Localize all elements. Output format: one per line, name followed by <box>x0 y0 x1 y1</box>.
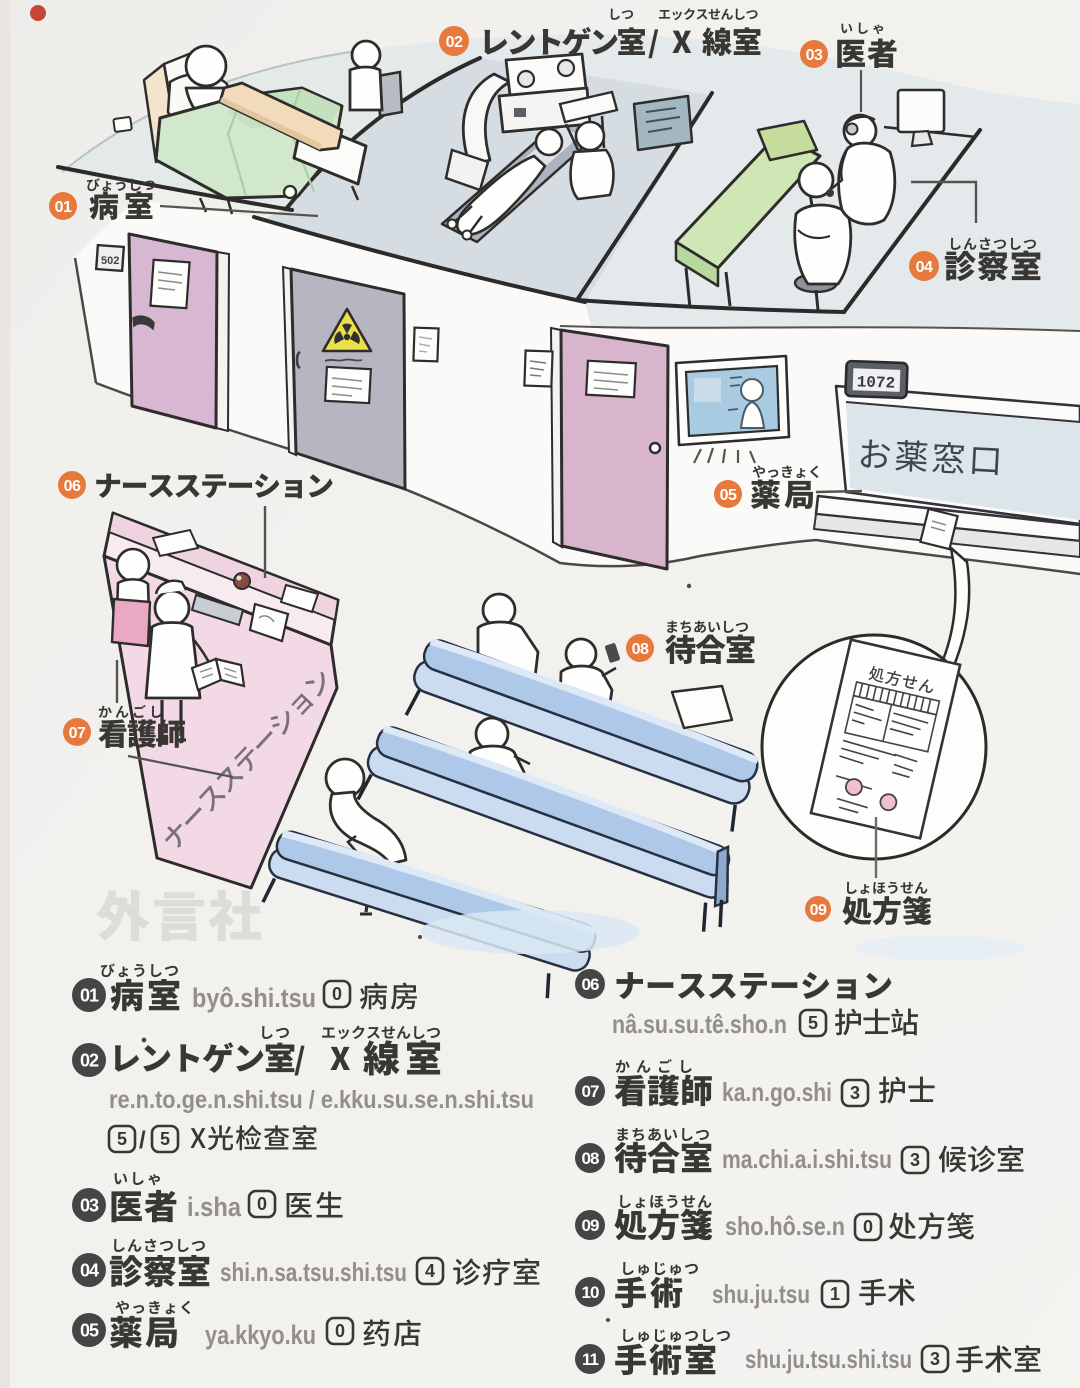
svg-text:re.n.to.ge.n.shi.tsu / e.kku.s: re.n.to.ge.n.shi.tsu / e.kku.su.se.n.shi… <box>109 1086 534 1114</box>
svg-text:0: 0 <box>863 1217 873 1237</box>
svg-text:01: 01 <box>55 199 72 216</box>
svg-text:5: 5 <box>117 1129 127 1149</box>
svg-text:4: 4 <box>425 1261 435 1281</box>
svg-text:5: 5 <box>160 1129 170 1149</box>
svg-text:0: 0 <box>257 1194 267 1214</box>
svg-text:0: 0 <box>335 1321 345 1341</box>
svg-text:09: 09 <box>582 1216 599 1235</box>
svg-text:3: 3 <box>850 1083 860 1103</box>
svg-text:03: 03 <box>80 1195 99 1215</box>
svg-text:06: 06 <box>582 975 599 994</box>
svg-text:ma.chi.a.i.shi.tsu: ma.chi.a.i.shi.tsu <box>722 1144 892 1174</box>
svg-text:shu.ju.tsu: shu.ju.tsu <box>712 1279 810 1309</box>
svg-text:02: 02 <box>446 34 463 51</box>
svg-text:02: 02 <box>80 1050 99 1070</box>
svg-text:1: 1 <box>830 1284 840 1304</box>
svg-text:04: 04 <box>80 1260 99 1280</box>
svg-text:502: 502 <box>101 255 119 267</box>
svg-text:3: 3 <box>910 1150 920 1170</box>
svg-text:shi.n.sa.tsu.shi.tsu: shi.n.sa.tsu.shi.tsu <box>220 1257 407 1287</box>
svg-text:05: 05 <box>80 1320 99 1340</box>
svg-text:01: 01 <box>80 985 99 1005</box>
svg-text:5: 5 <box>808 1013 818 1033</box>
svg-text:10: 10 <box>582 1283 599 1302</box>
svg-text:04: 04 <box>916 259 933 276</box>
svg-text:07: 07 <box>69 725 86 742</box>
svg-text:sho.hô.se.n: sho.hô.se.n <box>725 1211 845 1241</box>
svg-text:ka.n.go.shi: ka.n.go.shi <box>722 1077 832 1107</box>
svg-text:ya.kkyo.ku: ya.kkyo.ku <box>205 1320 316 1350</box>
svg-text:08: 08 <box>582 1149 599 1168</box>
svg-text:06: 06 <box>64 478 81 495</box>
svg-text:3: 3 <box>930 1349 940 1369</box>
svg-text:07: 07 <box>582 1082 599 1101</box>
svg-text:0: 0 <box>332 984 342 1004</box>
svg-text:i.sha: i.sha <box>187 1192 242 1222</box>
svg-text:03: 03 <box>806 47 823 64</box>
svg-text:/: / <box>139 1127 146 1154</box>
svg-text:05: 05 <box>720 487 737 504</box>
svg-text:byô.shi.tsu: byô.shi.tsu <box>192 983 316 1013</box>
svg-text:09: 09 <box>810 902 827 919</box>
svg-text:shu.ju.tsu.shi.tsu: shu.ju.tsu.shi.tsu <box>745 1344 912 1374</box>
svg-text:1072: 1072 <box>856 373 895 392</box>
svg-text:nâ.su.su.tê.sho.n: nâ.su.su.tê.sho.n <box>612 1009 787 1039</box>
svg-text:11: 11 <box>582 1350 599 1369</box>
svg-text:08: 08 <box>632 641 649 658</box>
